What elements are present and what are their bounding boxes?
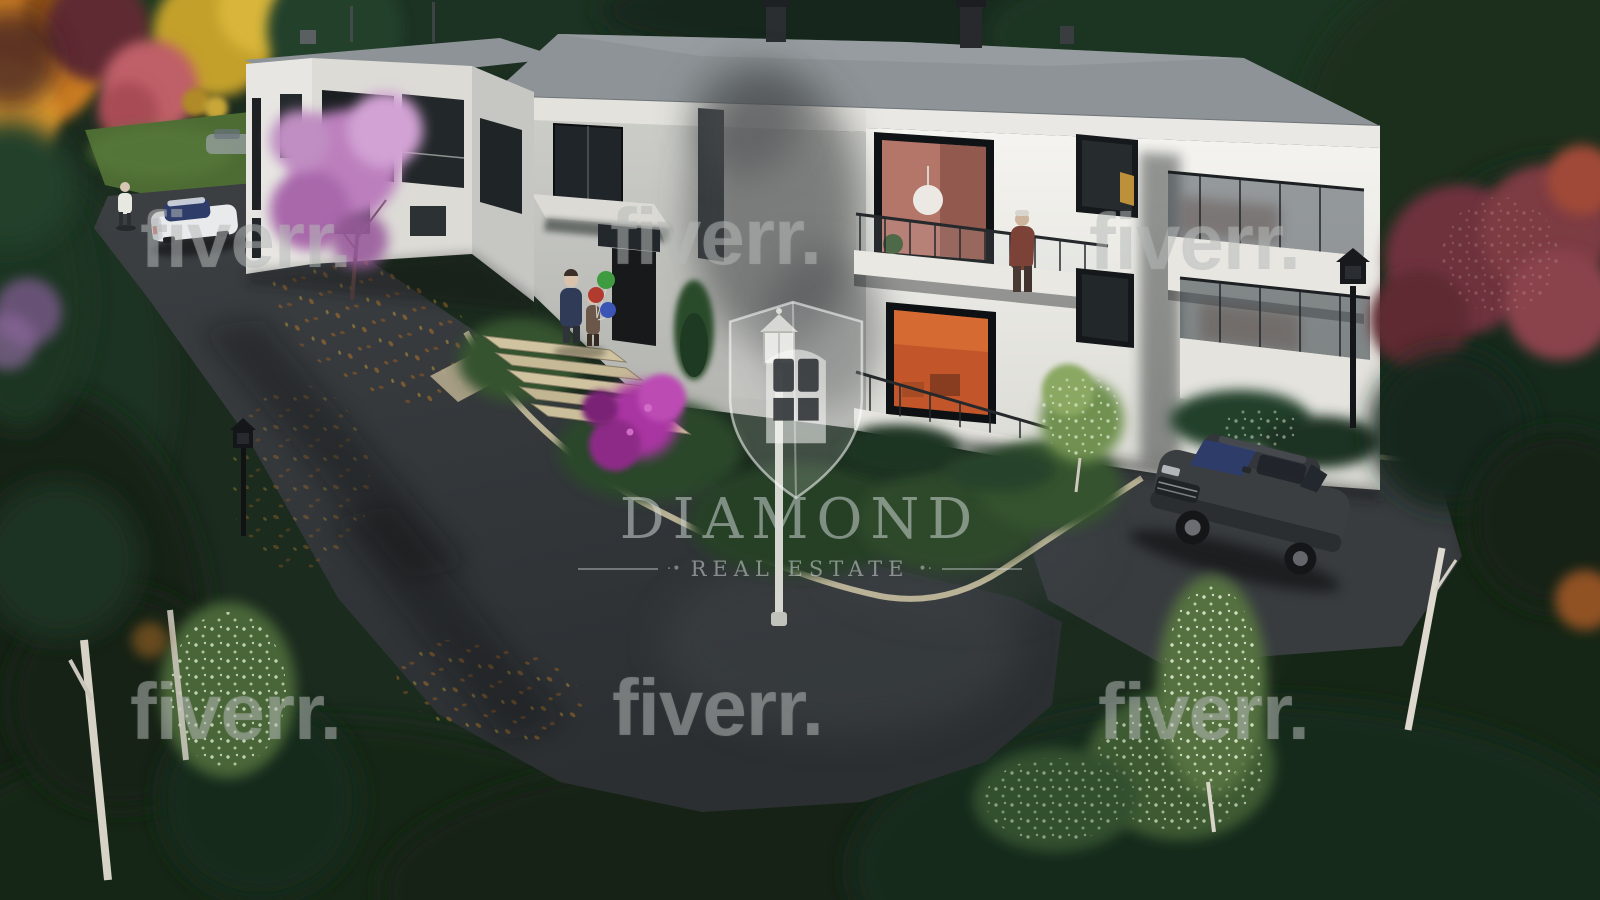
balloon-blue — [600, 302, 616, 318]
pendant-lamp — [913, 185, 943, 215]
fiverr-watermark-bottom-center: fiverr. — [612, 668, 823, 748]
logo-title: DIAMOND — [560, 489, 1040, 551]
fiverr-watermark-bottom-right: fiverr. — [1098, 672, 1309, 752]
render-canvas: fiverr. fiverr. fiverr. fiverr. fiverr. … — [0, 0, 1600, 900]
ornament-dots-right: •· — [918, 561, 933, 577]
balloon-red — [588, 287, 604, 303]
fiverr-watermark-top-center: fiverr. — [610, 197, 821, 277]
fiverr-watermark-top-right: fiverr. — [1089, 202, 1300, 282]
adult-figure — [560, 288, 582, 328]
shield-window-icon — [726, 299, 866, 501]
conifer — [674, 280, 714, 380]
ornament-dots-left: ·• — [667, 561, 682, 577]
logo-subtitle-row: ·• REAL ESTATE •· — [540, 557, 1060, 581]
child-figure — [586, 305, 600, 335]
fiverr-watermark-bottom-left: fiverr. — [130, 672, 341, 752]
ornament-line-left — [578, 568, 658, 570]
ornament-line-right — [942, 568, 1022, 570]
logo-subtitle: REAL ESTATE — [691, 557, 910, 581]
fiverr-watermark-top-left: fiverr. — [140, 200, 351, 280]
